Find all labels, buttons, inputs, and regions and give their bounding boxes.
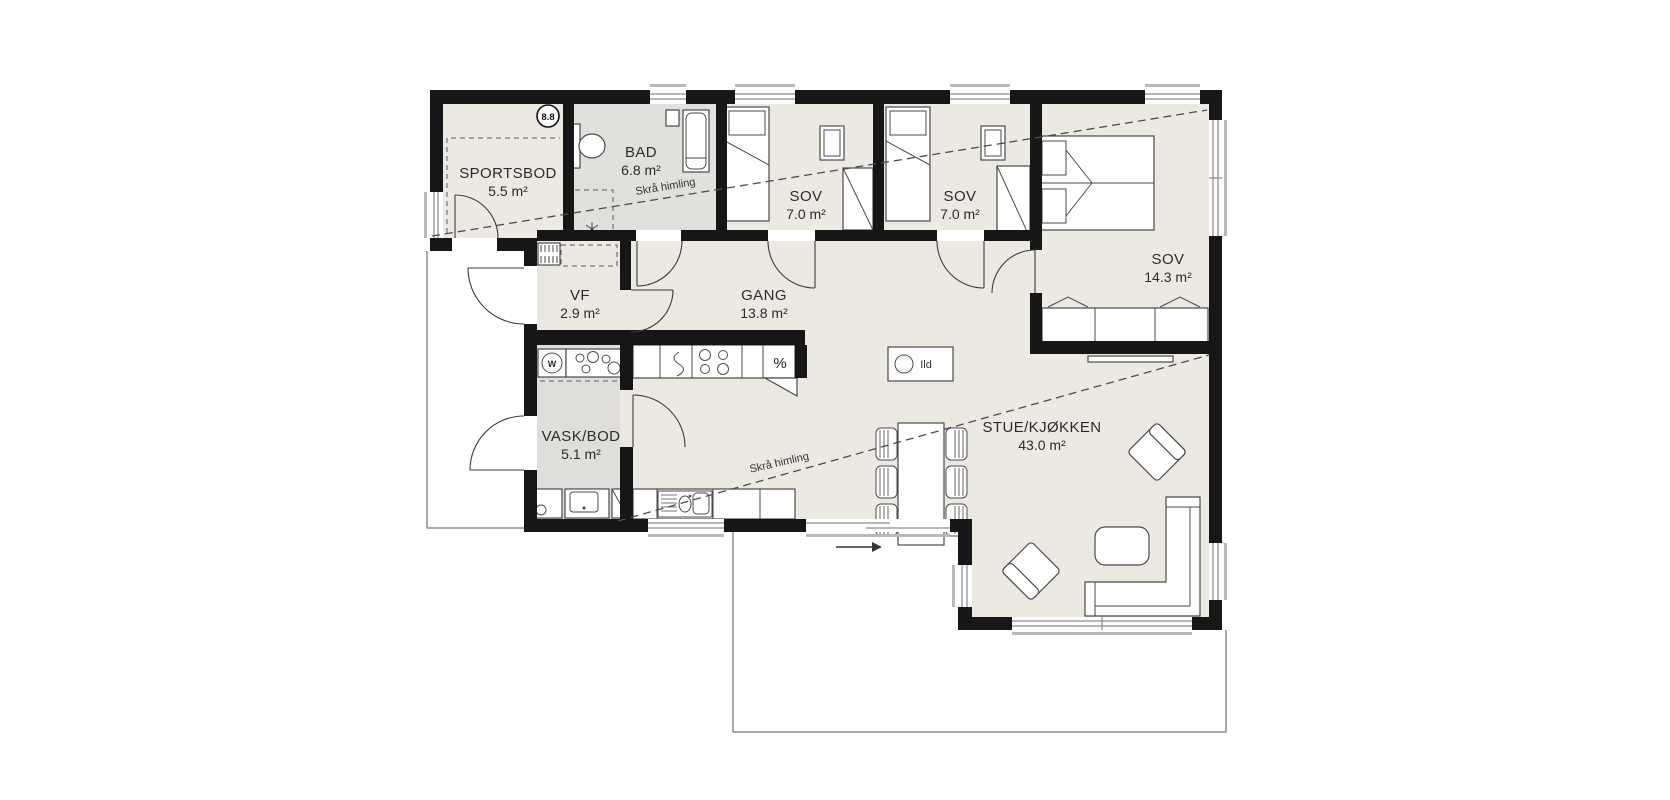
window-stue-south (1012, 617, 1192, 635)
sliding-door (806, 519, 950, 537)
fireplace-icon: Ild (888, 347, 953, 381)
window-stue-west (952, 565, 972, 607)
floor-gang-stue (537, 241, 1209, 519)
area-vask-bod: 5.1 m² (561, 446, 601, 462)
window-sportsbod (424, 192, 443, 238)
kitchen-counter-bottom (633, 489, 795, 519)
coffee-table (1095, 527, 1149, 565)
area-bad: 6.8 m² (621, 162, 661, 178)
label-vask-bod: VASK/BOD (542, 428, 621, 445)
washer-label: W (548, 359, 557, 369)
window-sov3-east (1209, 120, 1227, 236)
laundry-sink-units (531, 489, 628, 518)
area-vf: 2.9 m² (560, 305, 600, 321)
floor-plan-drawing: Ild (0, 0, 1670, 800)
label-vf: VF (570, 287, 590, 304)
label-sov1: SOV (790, 188, 823, 205)
label-sov3: SOV (1152, 251, 1185, 268)
label-sportsbod: SPORTSBOD (459, 165, 557, 182)
area-sov1: 7.0 m² (786, 206, 826, 222)
bathtub-icon (683, 110, 709, 172)
area-stue-kjokken: 43.0 m² (1018, 437, 1066, 453)
label-gang: GANG (741, 287, 787, 304)
entry-arrow-icon (836, 542, 882, 552)
window-sov3-top (1145, 84, 1200, 104)
label-stue-kjokken: STUE/KJØKKEN (983, 419, 1102, 436)
window-bad (650, 84, 686, 104)
area-sov3: 14.3 m² (1144, 269, 1192, 285)
ridge-badge-label: 8.8 (541, 112, 554, 123)
window-stue-east (1209, 543, 1227, 600)
area-sov2: 7.0 m² (940, 206, 980, 222)
label-sov2: SOV (944, 188, 977, 205)
area-gang: 13.8 m² (740, 305, 788, 321)
west-yard-outline (427, 251, 524, 528)
laundry-counter-icon (566, 349, 625, 377)
window-sov2 (950, 84, 1010, 104)
window-kitchen (648, 519, 724, 537)
floor-plan-canvas: Ild (0, 0, 1670, 800)
fireplace-label: Ild (920, 359, 932, 371)
window-sov1 (735, 84, 795, 104)
ridge-badge: 8.8 (537, 105, 559, 127)
bathroom-cabinet-icon (666, 110, 679, 126)
area-sportsbod: 5.5 m² (488, 183, 528, 199)
fridge-symbol: % (773, 355, 786, 372)
vask-exterior-door (470, 416, 537, 470)
label-bad: BAD (625, 144, 657, 161)
tv-bench-icon (1088, 356, 1173, 362)
entrance-door (468, 266, 537, 324)
